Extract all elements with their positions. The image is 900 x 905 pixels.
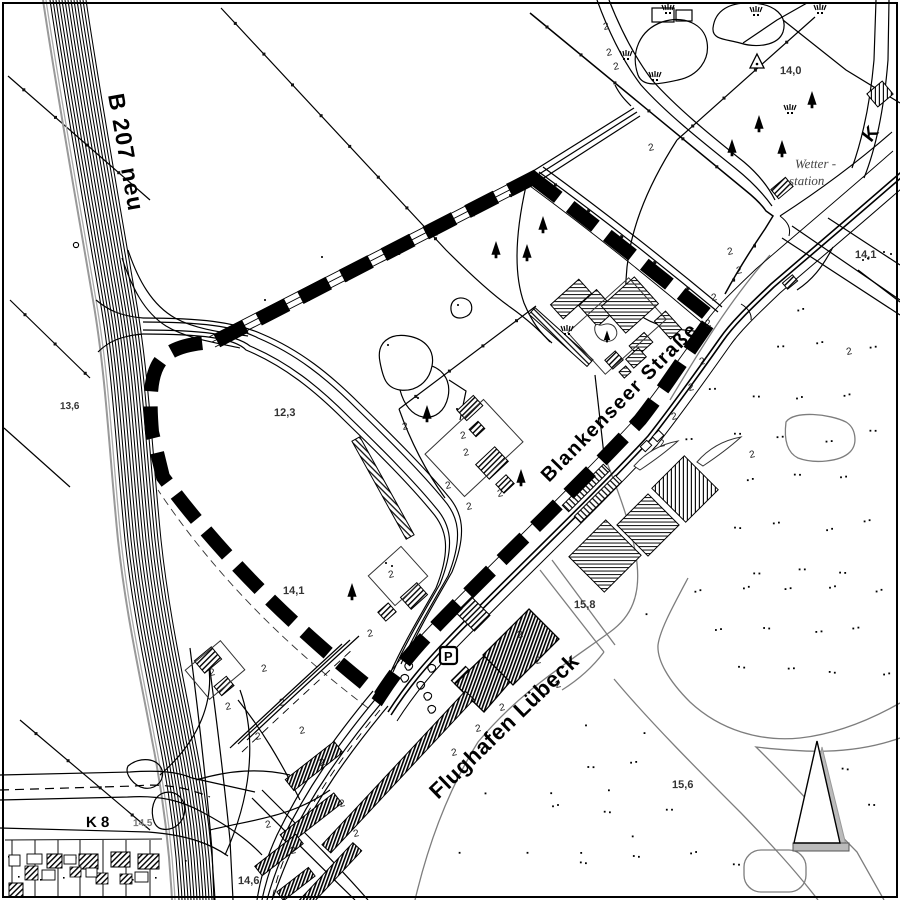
svg-text:K 8: K 8: [86, 814, 109, 831]
svg-text:14,1: 14,1: [283, 585, 305, 597]
svg-text:15,6: 15,6: [672, 779, 694, 791]
svg-text:12,3: 12,3: [274, 407, 296, 419]
svg-text:14,1: 14,1: [855, 249, 877, 261]
svg-text:Wetter -: Wetter -: [795, 156, 836, 171]
svg-text:14,6: 14,6: [238, 875, 260, 887]
svg-text:14,0: 14,0: [780, 65, 802, 77]
svg-text:14,5: 14,5: [133, 818, 153, 829]
svg-text:station: station: [789, 173, 825, 188]
svg-text:13,6: 13,6: [60, 401, 80, 412]
svg-text:15,8: 15,8: [574, 599, 596, 611]
svg-text:P: P: [444, 649, 453, 664]
